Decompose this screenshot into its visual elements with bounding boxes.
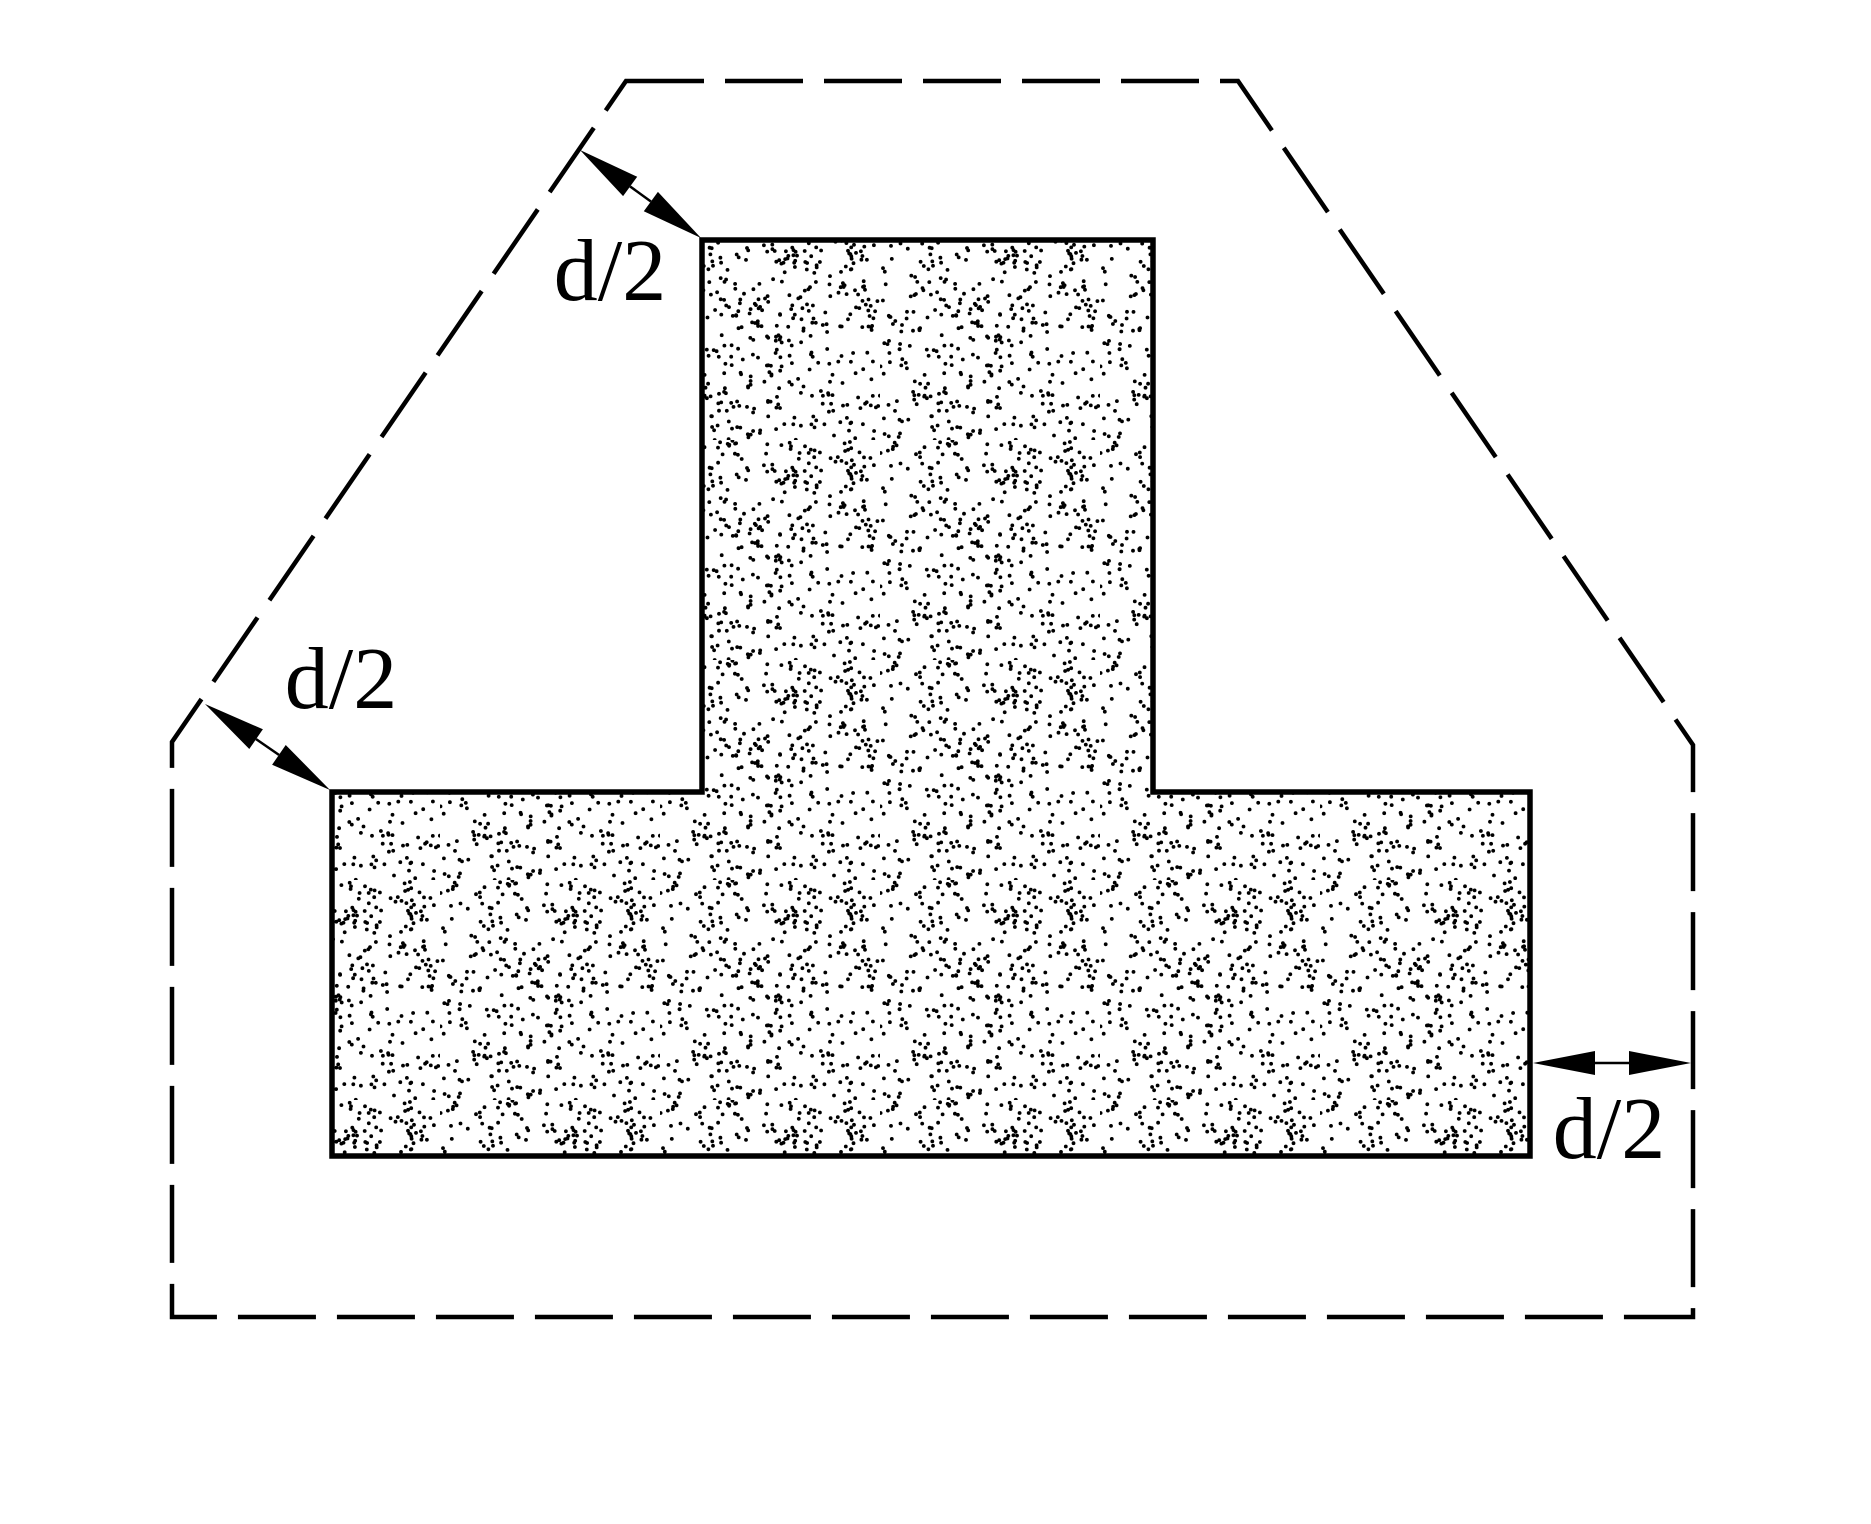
arrowhead-icon	[580, 150, 637, 196]
dimension-arrow-shaft	[630, 186, 651, 201]
dimension-label: d/2	[1553, 1081, 1665, 1178]
arrowhead-icon	[205, 704, 263, 749]
dimension-arrow-shaft	[256, 739, 279, 755]
dimension-label: d/2	[554, 223, 666, 320]
t-section-shear-perimeter-diagram: d/2d/2d/2	[0, 0, 1871, 1524]
dimension-d2-0: d/2	[554, 150, 701, 320]
arrowhead-icon	[1629, 1051, 1691, 1075]
arrowhead-icon	[1533, 1051, 1595, 1075]
dimension-label: d/2	[285, 631, 397, 728]
dimension-d2-2: d/2	[1533, 1051, 1691, 1178]
t-section-shape	[332, 240, 1530, 1156]
arrowhead-icon	[272, 745, 330, 790]
diagram-page: d/2d/2d/2	[0, 0, 1871, 1524]
t-section-layer	[332, 240, 1530, 1156]
